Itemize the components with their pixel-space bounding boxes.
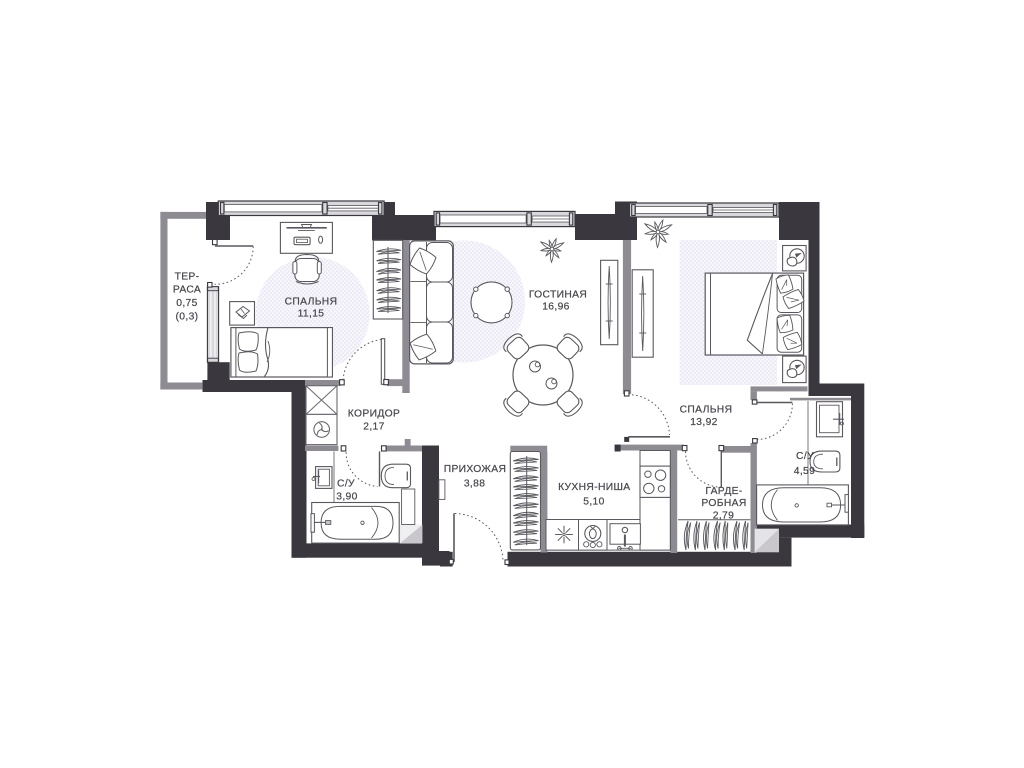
svg-text:РАСА: РАСА: [173, 285, 201, 296]
svg-text:13,92: 13,92: [690, 417, 718, 428]
svg-text:ПРИХОЖАЯ: ПРИХОЖАЯ: [444, 464, 507, 475]
svg-text:2,79: 2,79: [713, 511, 734, 522]
svg-text:ТЕР-: ТЕР-: [175, 272, 200, 283]
svg-text:КОРИДОР: КОРИДОР: [348, 409, 400, 420]
svg-text:СПАЛЬНЯ: СПАЛЬНЯ: [680, 405, 733, 416]
svg-text:ГОСТИНАЯ: ГОСТИНАЯ: [529, 289, 587, 300]
svg-text:2,17: 2,17: [363, 422, 384, 433]
svg-text:С/У: С/У: [796, 451, 814, 462]
svg-text:СПАЛЬНЯ: СПАЛЬНЯ: [285, 296, 338, 307]
svg-text:3,88: 3,88: [464, 479, 485, 490]
svg-text:3,90: 3,90: [336, 491, 357, 502]
svg-text:4,59: 4,59: [794, 466, 815, 477]
svg-text:ГАРДЕ-: ГАРДЕ-: [705, 486, 742, 497]
svg-text:16,96: 16,96: [542, 302, 570, 313]
svg-text:КУХНЯ-НИША: КУХНЯ-НИША: [558, 482, 630, 493]
svg-text:5,10: 5,10: [583, 496, 604, 507]
svg-text:РОБНАЯ: РОБНАЯ: [701, 498, 746, 509]
svg-text:11,15: 11,15: [298, 309, 325, 320]
svg-text:0,75: 0,75: [176, 298, 197, 309]
svg-text:С/У: С/У: [337, 479, 355, 490]
svg-text:(0,3): (0,3): [176, 312, 199, 323]
